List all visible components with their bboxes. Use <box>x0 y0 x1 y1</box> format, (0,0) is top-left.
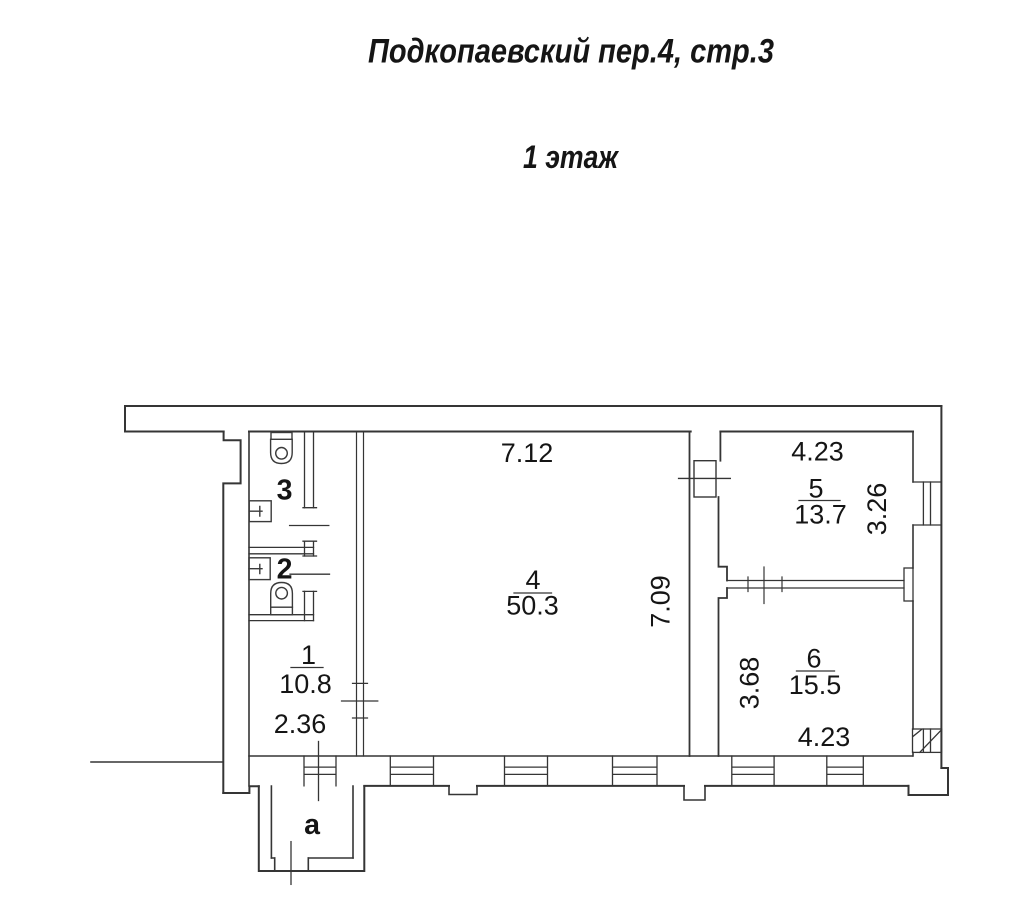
svg-text:3: 3 <box>277 475 293 507</box>
svg-text:10.8: 10.8 <box>279 669 332 699</box>
svg-text:3.26: 3.26 <box>862 483 892 536</box>
svg-text:50.3: 50.3 <box>506 591 559 621</box>
svg-text:7.12: 7.12 <box>501 438 554 468</box>
svg-text:7.09: 7.09 <box>646 575 676 628</box>
svg-text:Подкопаевский пер.4, стр.3: Подкопаевский пер.4, стр.3 <box>368 33 774 71</box>
svg-text:15.5: 15.5 <box>789 670 842 700</box>
svg-text:2.36: 2.36 <box>274 709 327 739</box>
svg-text:3.68: 3.68 <box>735 657 765 710</box>
svg-text:13.7: 13.7 <box>794 500 847 530</box>
svg-text:1 этаж: 1 этаж <box>523 139 619 175</box>
svg-text:1: 1 <box>301 640 316 670</box>
svg-text:6: 6 <box>806 644 821 674</box>
svg-text:а: а <box>304 809 321 841</box>
svg-text:2: 2 <box>277 554 293 586</box>
svg-text:4.23: 4.23 <box>791 437 844 467</box>
svg-text:4.23: 4.23 <box>798 722 851 752</box>
